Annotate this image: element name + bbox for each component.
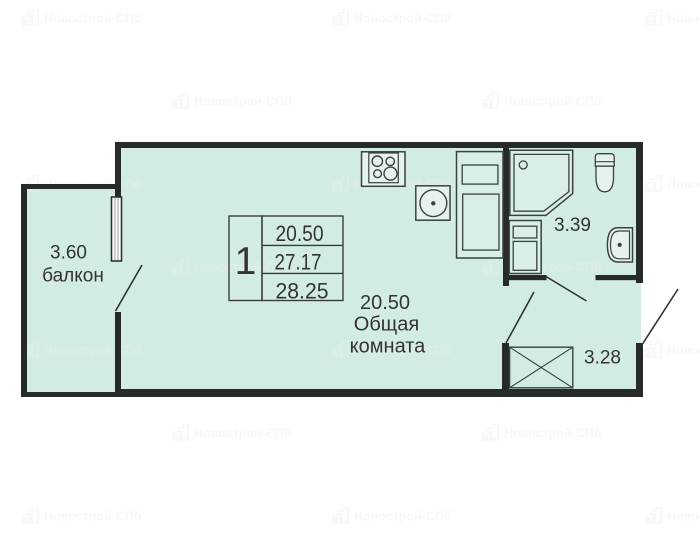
svg-text:Новострой-СПб: Новострой-СПб <box>504 427 602 441</box>
svg-text:3.60: 3.60 <box>50 243 87 264</box>
svg-text:1: 1 <box>235 240 257 283</box>
svg-text:20.50: 20.50 <box>360 292 410 314</box>
svg-text:Общая: Общая <box>354 314 419 336</box>
svg-text:20.50: 20.50 <box>276 221 324 246</box>
svg-text:3.39: 3.39 <box>554 215 591 236</box>
svg-text:комната: комната <box>350 336 427 358</box>
svg-text:Новострой-СПб: Новострой-СПб <box>667 344 700 358</box>
svg-text:3.28: 3.28 <box>584 348 621 369</box>
svg-text:Новострой-СПб: Новострой-СПб <box>44 344 142 358</box>
svg-text:балкон: балкон <box>42 266 104 287</box>
svg-text:Новострой-СПб: Новострой-СПб <box>667 178 700 192</box>
svg-text:Новострой-СПб: Новострой-СПб <box>504 95 602 109</box>
svg-text:Новострой-СПб: Новострой-СПб <box>667 12 700 26</box>
svg-text:Новострой-СПб: Новострой-СПб <box>194 95 292 109</box>
svg-text:Новострой-СПб: Новострой-СПб <box>667 510 700 524</box>
svg-text:Новострой-СПб: Новострой-СПб <box>44 12 142 26</box>
svg-text:Новострой-СПб: Новострой-СПб <box>354 12 452 26</box>
svg-text:Новострой-СПб: Новострой-СПб <box>354 510 452 524</box>
svg-text:Новострой-СПб: Новострой-СПб <box>44 510 142 524</box>
svg-text:Новострой-СПб: Новострой-СПб <box>194 427 292 441</box>
svg-text:27.17: 27.17 <box>275 250 322 275</box>
svg-text:28.25: 28.25 <box>276 279 329 304</box>
